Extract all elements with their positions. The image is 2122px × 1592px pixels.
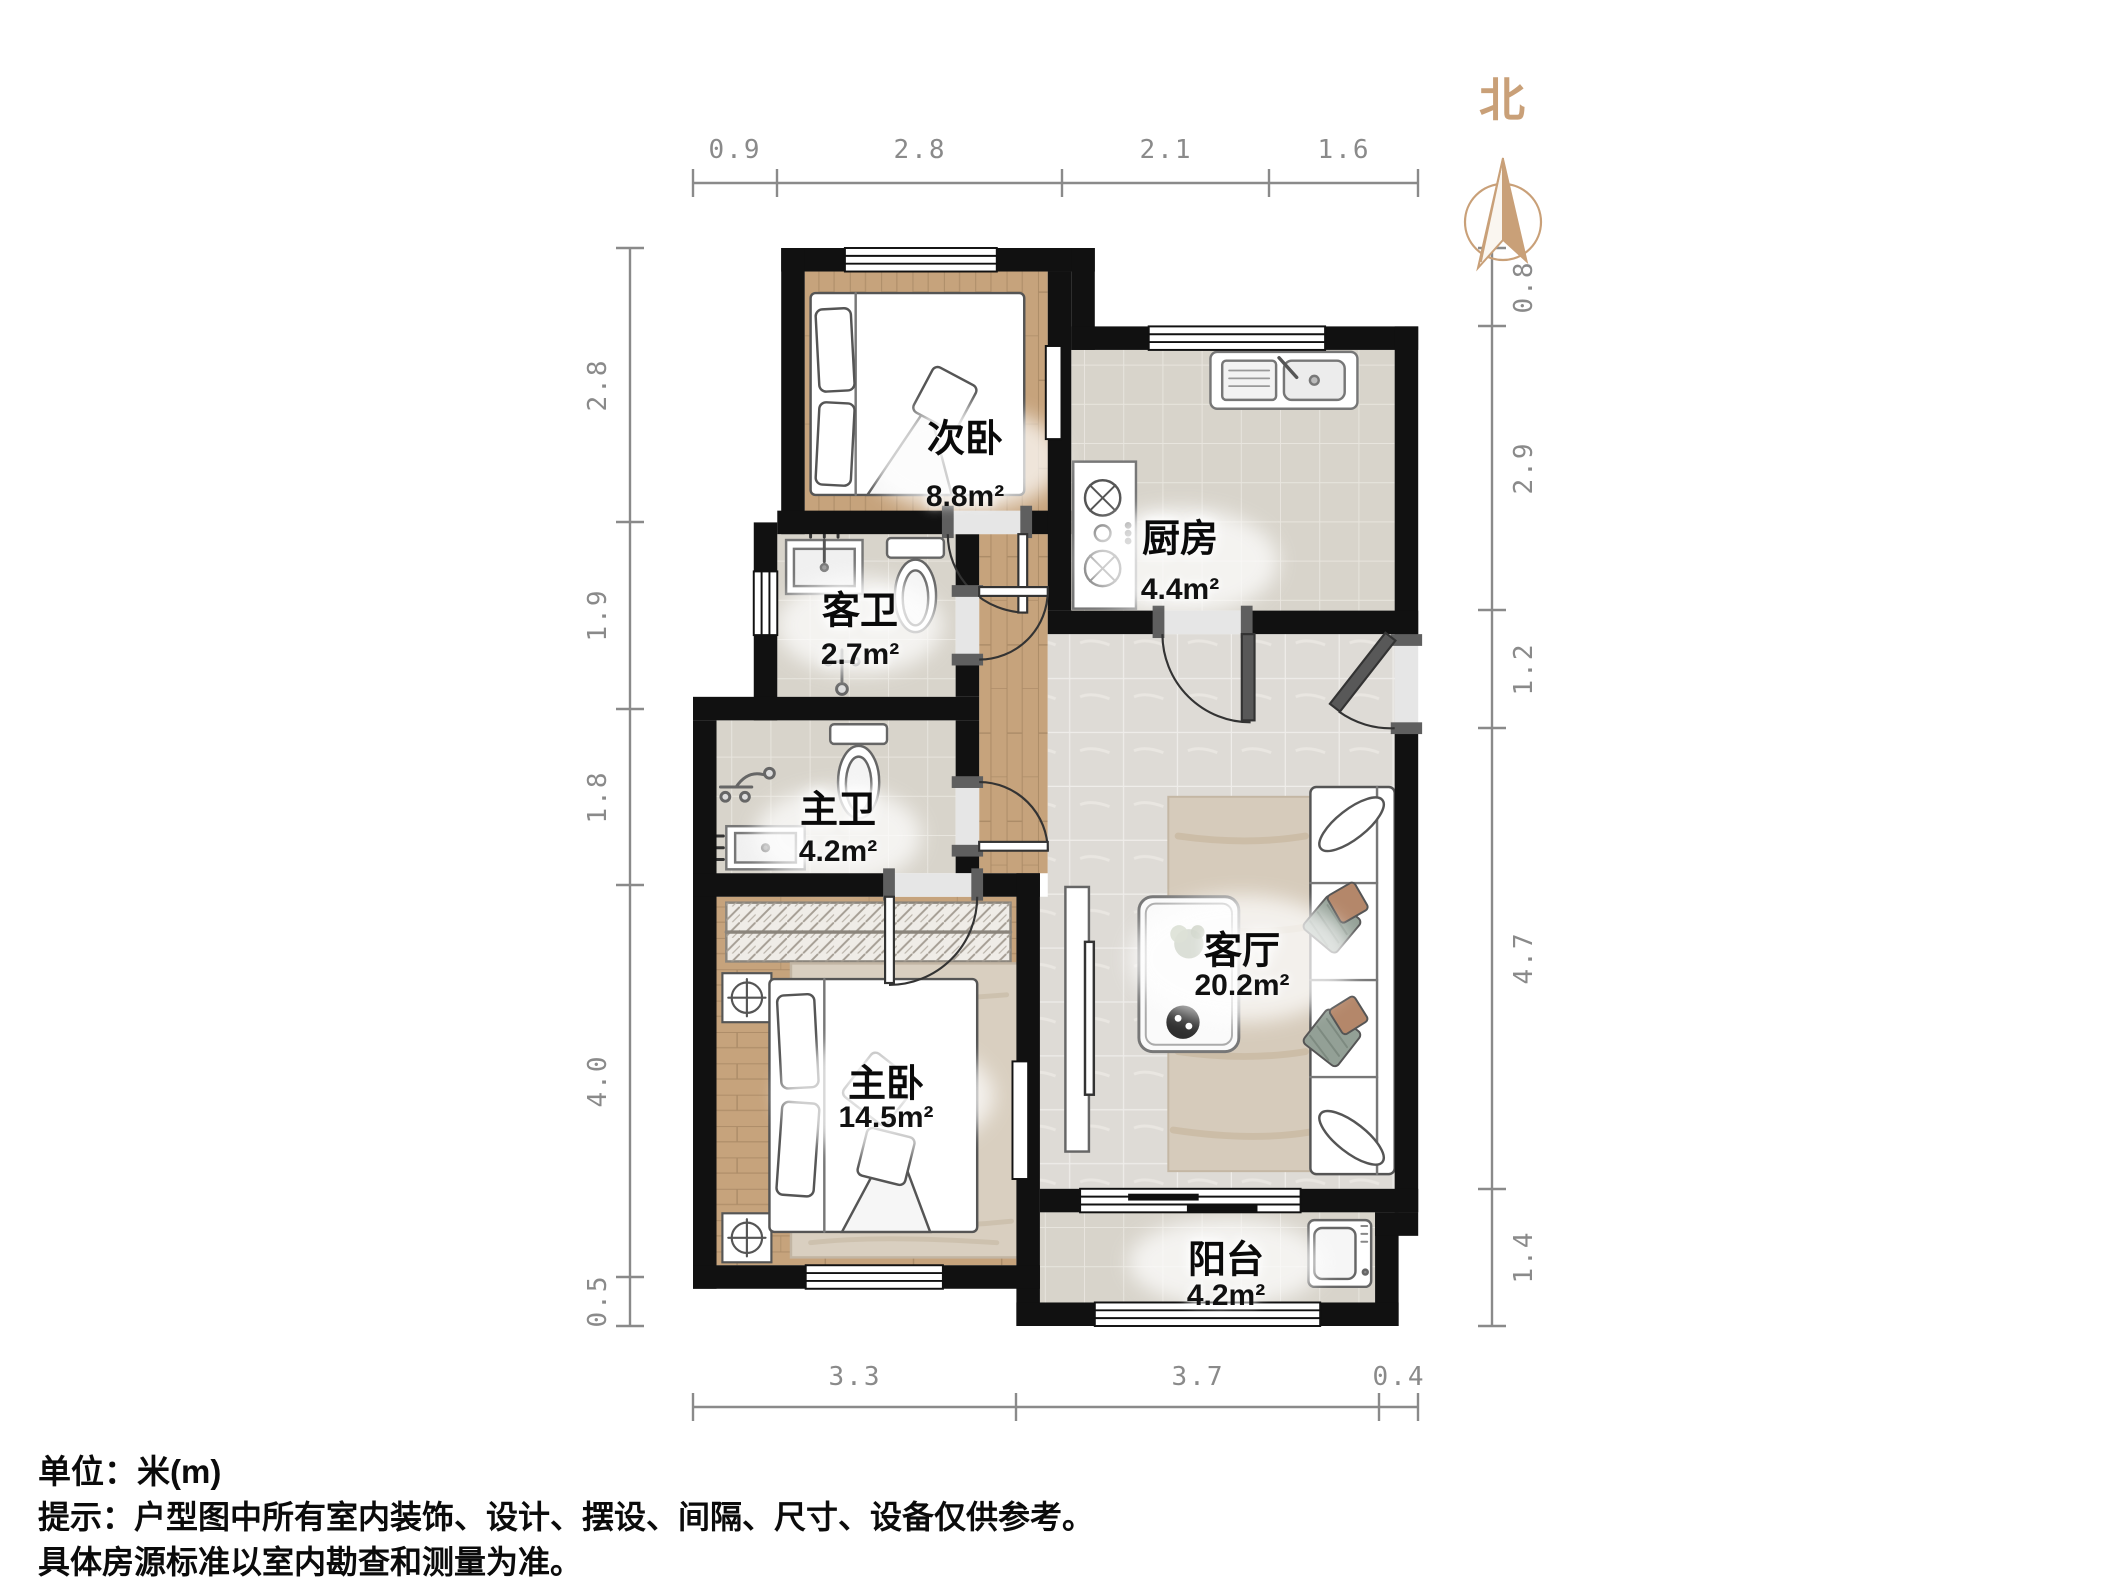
footer-tip-line1: 提示：户型图中所有室内装饰、设计、摆设、间隔、尺寸、设备仅供参考。 — [38, 1492, 1094, 1538]
dim-right-4: 1.4 — [1509, 1231, 1539, 1284]
dim-right-0: 0.8 — [1509, 261, 1539, 314]
dim-right-1: 2.9 — [1509, 442, 1539, 495]
dim-right-2: 1.2 — [1509, 643, 1539, 696]
room-label-kitchen: 厨房 — [1142, 508, 1218, 563]
room-label-secondary-bedroom: 次卧 — [927, 408, 1003, 463]
window-master-bedroom — [806, 1265, 943, 1289]
floor-plan-page: 北 次卧 8.8m² 厨房 4.4m² 客卫 2.7m² 主卫 4.2m² 主卧… — [0, 0, 2122, 1592]
window-living-balcony — [1080, 1189, 1301, 1213]
window-kitchen — [1149, 326, 1325, 350]
footer-unit-note: 单位：米(m) — [38, 1445, 221, 1493]
dim-right-3: 4.7 — [1509, 932, 1539, 985]
room-area-living-room: 20.2m² — [1194, 969, 1289, 1003]
dim-left-0: 2.8 — [583, 359, 613, 412]
dim-bottom-0: 3.3 — [829, 1362, 882, 1392]
footer-tip-line2: 具体房源标准以室内勘查和测量为准。 — [38, 1537, 582, 1583]
room-label-balcony: 阳台 — [1188, 1229, 1264, 1284]
north-compass-icon — [1465, 158, 1541, 268]
dim-bottom-1: 3.7 — [1172, 1362, 1225, 1392]
nightstand-icon — [722, 1213, 771, 1262]
dim-top-3: 1.6 — [1318, 135, 1371, 165]
dim-bottom-2: 0.4 — [1373, 1362, 1426, 1392]
room-area-master-bathroom: 4.2m² — [799, 835, 877, 869]
room-area-secondary-bedroom: 8.8m² — [926, 480, 1004, 514]
north-label: 北 — [1479, 64, 1525, 130]
dim-left-3: 4.0 — [583, 1055, 613, 1108]
tv-console-icon — [1065, 887, 1093, 1152]
nightstand-icon — [722, 973, 771, 1022]
dim-top-1: 2.8 — [894, 135, 947, 165]
dim-top-0: 0.9 — [709, 135, 762, 165]
window-secondary-bedroom — [845, 248, 997, 272]
dim-top-2: 2.1 — [1140, 135, 1193, 165]
room-area-guest-bathroom: 2.7m² — [821, 638, 899, 672]
dim-left-2: 1.8 — [583, 771, 613, 824]
room-area-kitchen: 4.4m² — [1141, 573, 1219, 607]
kitchen-sink-icon — [1210, 352, 1357, 409]
window-guest-bath — [754, 571, 778, 635]
wardrobe-icon — [726, 903, 1010, 962]
dim-left-1: 1.9 — [583, 589, 613, 642]
room-label-living-room: 客厅 — [1204, 920, 1280, 975]
dim-left-4: 0.5 — [583, 1275, 613, 1328]
room-area-balcony: 4.2m² — [1187, 1279, 1265, 1313]
room-area-master-bedroom: 14.5m² — [838, 1101, 933, 1135]
floor-plan-canvas — [0, 0, 2122, 1592]
room-label-guest-bathroom: 客卫 — [822, 580, 898, 635]
room-label-master-bathroom: 主卫 — [800, 779, 876, 834]
room-label-master-bedroom: 主卧 — [848, 1053, 924, 1108]
